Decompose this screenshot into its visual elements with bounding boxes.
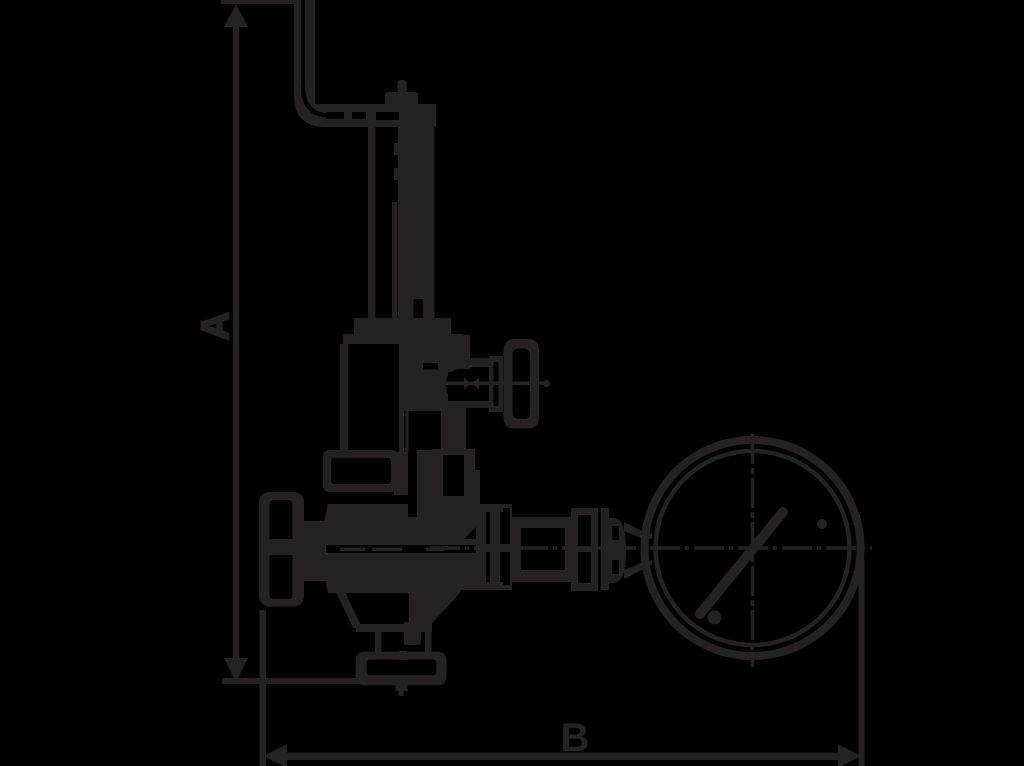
svg-text:B: B (561, 716, 590, 760)
svg-text:A: A (195, 312, 238, 340)
